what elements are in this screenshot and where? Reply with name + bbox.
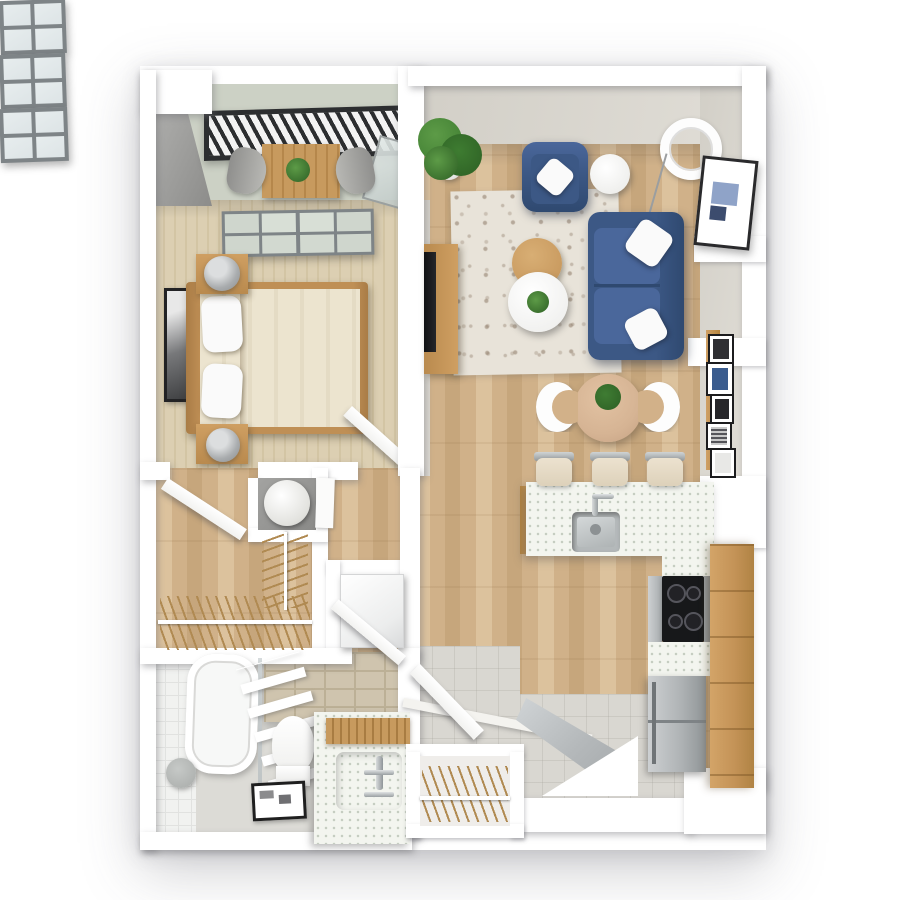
- coffee-table-plant: [527, 291, 549, 313]
- frame-photo: [711, 427, 727, 445]
- window-pane: [3, 4, 31, 26]
- chair-seat-cutout: [552, 390, 578, 424]
- wall-bedroom-bottom-a: [140, 462, 170, 480]
- dining-chair-right: [638, 382, 680, 432]
- gallery-frame-1: [708, 334, 734, 364]
- burner: [686, 586, 701, 601]
- toilet-lid: [272, 716, 314, 772]
- art-block: [709, 205, 726, 221]
- shower-stool: [166, 758, 196, 788]
- living-wall-art: [693, 155, 758, 250]
- window-pane: [36, 136, 65, 158]
- kitchen-faucet: [592, 496, 598, 516]
- sofa-cushion-gap: [594, 284, 660, 287]
- mat-pattern: [279, 794, 291, 804]
- window-pane: [3, 112, 32, 134]
- frame-photo: [715, 399, 729, 419]
- dining-chair-left: [536, 382, 578, 432]
- sink-drain: [590, 524, 601, 535]
- window-pane: [337, 212, 371, 231]
- vanity-faucet-handle: [364, 792, 394, 797]
- cooktop: [662, 576, 704, 642]
- bar-stool-2: [592, 458, 628, 486]
- mat-pattern: [259, 790, 273, 799]
- bed-pillow-bottom: [201, 363, 244, 419]
- kitchen-island: [526, 482, 714, 556]
- window-pane: [34, 3, 62, 25]
- coat-closet-bottom: [406, 824, 524, 838]
- wall-left-outer: [140, 70, 156, 850]
- window-pane: [300, 212, 334, 231]
- side-table: [590, 154, 630, 194]
- bath-floor-mat: [251, 781, 307, 822]
- table-lamp-bottom: [206, 428, 240, 462]
- window-pane: [225, 214, 259, 233]
- window-pane: [262, 213, 296, 232]
- frame-photo: [713, 339, 729, 359]
- wall-bedroom-living: [398, 66, 424, 476]
- window-pane: [337, 233, 371, 252]
- gallery-frame-3: [710, 394, 734, 424]
- fridge-door-seam: [648, 720, 706, 723]
- window-pane: [4, 83, 32, 105]
- coat-closet-rod: [420, 796, 510, 800]
- kitchen-tall-cabinets: [710, 544, 754, 788]
- floorplan-canvas: [0, 0, 900, 900]
- balcony-plant: [286, 158, 310, 182]
- burner: [668, 614, 683, 629]
- art-block: [711, 182, 739, 207]
- refrigerator: [648, 676, 706, 772]
- bed-pillow-top: [201, 295, 244, 353]
- sofa: [588, 212, 684, 360]
- living-window-2: [0, 53, 67, 109]
- gallery-frame-4: [706, 422, 732, 450]
- coat-closet-hangers: [422, 766, 508, 822]
- window-pane: [4, 29, 32, 51]
- vanity-wood-tray: [326, 718, 410, 744]
- appliance-front: [648, 576, 662, 642]
- coat-closet-top: [406, 744, 524, 756]
- counter-below-cooktop: [648, 642, 714, 676]
- tv: [424, 252, 436, 352]
- window-pane: [35, 111, 64, 133]
- closet-rod-bottom: [158, 620, 312, 624]
- window-pane: [35, 28, 63, 50]
- frame-photo: [712, 368, 728, 390]
- wall-top-outer: [408, 66, 766, 86]
- frame-photo: [715, 453, 731, 473]
- fridge-handle: [652, 682, 656, 764]
- slider-panel: [225, 213, 297, 254]
- window-pane: [3, 58, 31, 80]
- living-window-3: [0, 107, 69, 163]
- window-pane: [300, 234, 334, 253]
- gallery-frame-2: [706, 362, 734, 396]
- burner: [667, 584, 686, 603]
- door-panel-on-wall: [315, 478, 335, 529]
- window-pane: [35, 82, 63, 104]
- vanity-faucet-handle: [364, 770, 394, 775]
- armchair: [522, 142, 588, 212]
- bar-stool-1: [536, 458, 572, 486]
- bedroom-sliding-door: [222, 209, 375, 258]
- window-pane: [262, 235, 296, 254]
- closet-rod-side: [284, 532, 287, 610]
- kitchen-sink: [572, 512, 620, 552]
- living-window-1: [0, 0, 67, 55]
- window-pane: [34, 57, 62, 79]
- water-heater: [264, 480, 310, 526]
- dining-centerpiece-plant: [595, 384, 621, 410]
- bar-stool-3: [647, 458, 683, 486]
- window-pane: [4, 137, 33, 159]
- kitchen-faucet-spout: [592, 494, 614, 499]
- slider-panel: [300, 212, 372, 253]
- vanity-sink: [336, 752, 402, 810]
- burner: [684, 612, 703, 631]
- table-lamp-top: [204, 256, 240, 291]
- plant-foliage: [424, 146, 458, 180]
- window-pane: [225, 235, 259, 254]
- gallery-frame-5: [710, 448, 736, 478]
